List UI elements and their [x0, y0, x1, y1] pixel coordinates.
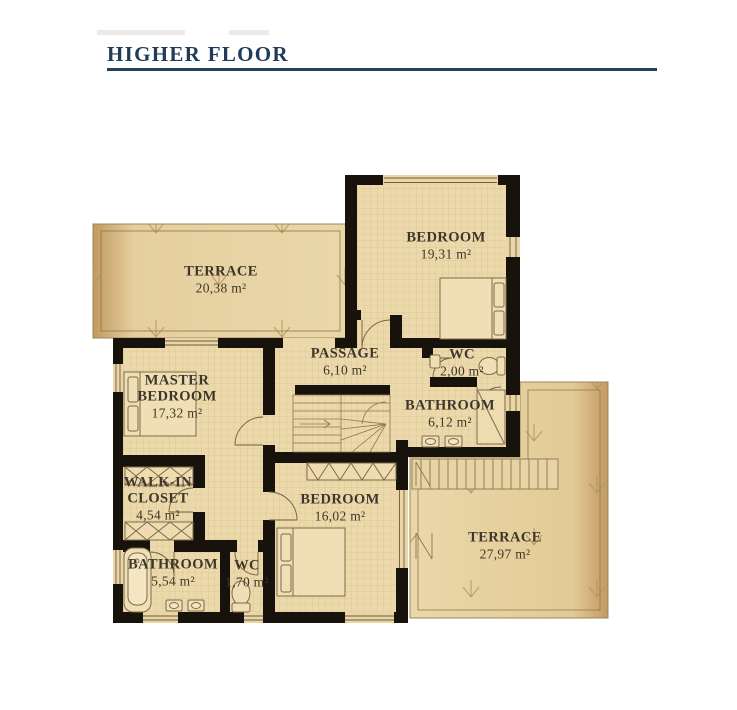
room-area: 20,38 m²: [184, 281, 258, 298]
room-area: 19,31 m²: [406, 247, 485, 264]
room-area: 5,54 m²: [128, 574, 218, 591]
room-area: 6,12 m²: [405, 415, 495, 432]
room-label-passage: PASSAGE 6,10 m²: [311, 347, 380, 380]
room-label-bedroom-top: BEDROOM 19,31 m²: [406, 231, 485, 264]
room-name: BEDROOM: [300, 493, 379, 509]
room-label-terrace-right: TERRACE 27,97 m²: [468, 531, 542, 564]
room-name: BEDROOM: [406, 231, 485, 247]
room-name: WALK-IN CLOSET: [115, 476, 201, 508]
room-label-master-bedroom: MASTER BEDROOM 17,32 m²: [125, 374, 229, 423]
room-name: BATHROOM: [128, 558, 218, 574]
room-label-bedroom-bottom: BEDROOM 16,02 m²: [300, 493, 379, 526]
room-area: 2,00 m²: [440, 364, 484, 381]
bed-icon: [440, 278, 506, 339]
room-label-wc-top: WC 2,00 m²: [440, 348, 484, 381]
room-name: BATHROOM: [405, 399, 495, 415]
room-name: TERRACE: [468, 531, 542, 547]
room-name: PASSAGE: [311, 347, 380, 363]
wardrobe-icon: [307, 463, 396, 480]
bed-icon: [277, 528, 345, 596]
room-label-walk-in-closet: WALK-IN CLOSET 4,54 m²: [115, 476, 201, 525]
room-name: TERRACE: [184, 265, 258, 281]
room-name: WC: [440, 348, 484, 364]
floorplan-page: HIGHER FLOOR: [0, 0, 737, 710]
room-label-wc-bottom: WC 1,70 m²: [225, 559, 269, 592]
room-area: 27,97 m²: [468, 547, 542, 564]
sink-icon: [430, 355, 440, 368]
room-area: 17,32 m²: [125, 406, 229, 423]
room-area: 4,54 m²: [115, 508, 201, 525]
room-label-bathroom-top: BATHROOM 6,12 m²: [405, 399, 495, 432]
room-area: 16,02 m²: [300, 509, 379, 526]
room-area: 6,10 m²: [311, 363, 380, 380]
room-label-bathroom-bottom: BATHROOM 5,54 m²: [128, 558, 218, 591]
room-label-terrace-left: TERRACE 20,38 m²: [184, 265, 258, 298]
room-area: 1,70 m²: [225, 575, 269, 592]
room-name: WC: [225, 559, 269, 575]
room-name: MASTER BEDROOM: [125, 374, 229, 406]
